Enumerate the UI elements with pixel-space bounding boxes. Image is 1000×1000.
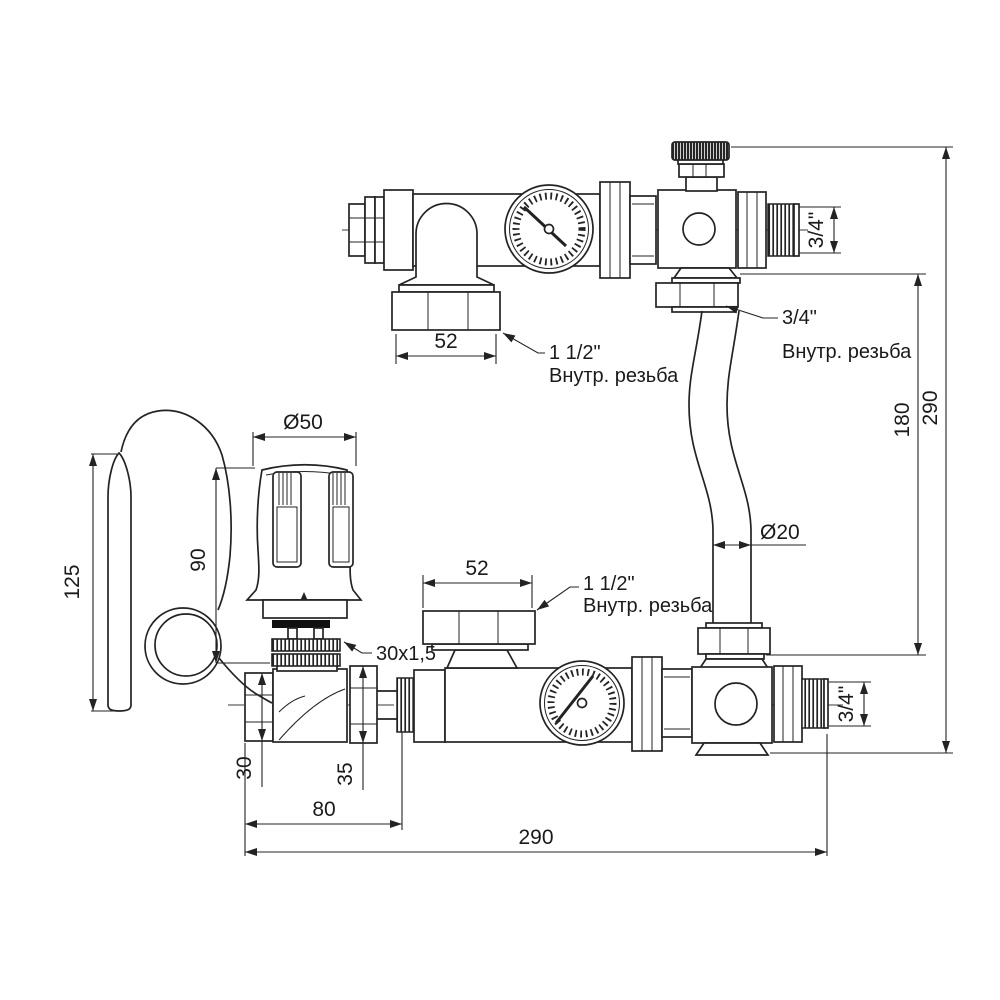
air-vent-cap [672,142,729,191]
dim-label-top-52: 52 [434,330,457,353]
bottom-top-hex [423,611,535,668]
dim-label-bottom-34: 3/4" [835,686,858,723]
note-top-thread-size: 1 1/2" [549,342,601,364]
note-pipe-nut-size: 3/4" [782,307,817,329]
head-grip-right [329,472,353,567]
dim-label-bottom-52: 52 [465,557,488,580]
note-bottom-thread-size: 1 1/2" [583,573,635,595]
note-top-thread-type: Внутр. резьба [549,365,679,387]
drawing-canvas: 52 1 1/2" Внутр. резьба 3/4" 3/4" Внутр.… [0,0,1000,1000]
top-outlet-thread [738,192,799,268]
dim-label-bottom-80: 80 [312,798,335,821]
dim-label-head-dia: Ø50 [283,411,323,434]
top-cross-valve [658,190,736,268]
top-union-nut [600,182,656,278]
note-pipe-nut: 3/4" Внутр. резьба [726,306,912,363]
technical-drawing: 52 1 1/2" Внутр. резьба 3/4" 3/4" Внутр.… [0,0,1000,1000]
dim-bottom-34: 3/4" [829,682,871,726]
adapter-nut-30x15 [272,639,340,666]
pipe-bottom-nut [698,623,770,668]
bottom-left-hex [245,673,273,741]
dim-label-pipe-dia: Ø20 [760,521,800,544]
dim-bottom-52: 52 [423,557,532,608]
note-top-thread: 1 1/2" Внутр. резьба [503,333,679,387]
dim-label-head-height: 90 [187,548,210,571]
note-bottom-thread: 1 1/2" Внутр. резьба [537,573,713,617]
head-grip-left [273,472,301,567]
bottom-pressure-gauge [540,661,624,745]
thermostatic-valve-tee [273,663,347,742]
top-left-spindle [349,190,413,270]
dim-pipe-dia: Ø20 [713,521,806,545]
capillary-tube-upper [121,410,231,610]
dim-head-dia: Ø50 [253,411,356,466]
top-valve-group [349,142,799,330]
dim-label-right-290: 290 [919,390,942,425]
note-adapter-thread-label: 30x1,5 [376,643,436,665]
dim-right-180: 180 [740,274,926,655]
dim-label-right-180: 180 [891,402,914,437]
thermostatic-head [247,465,361,666]
dim-label-top-34: 3/4" [805,212,828,249]
dim-label-bottom-290: 290 [518,826,553,849]
bottom-union-nut [632,657,692,751]
dim-bottom-80: 80 [245,732,402,856]
note-bottom-thread-type: Внутр. резьба [583,595,713,617]
bottom-stub-thread [377,670,445,742]
top-valve-bottom-union [656,268,740,312]
top-pressure-gauge [505,185,593,273]
head-neck [263,600,347,639]
note-adapter-thread: 30x1,5 [344,642,436,665]
capillary-coil [145,608,221,684]
bottom-outlet-thread [774,666,828,742]
dim-top-34: 3/4" [799,207,841,253]
note-pipe-nut-type: Внутр. резьба [782,341,912,363]
sensor-probe [108,453,131,711]
bottom-cross-valve [692,667,772,755]
dim-top-52: 52 [396,330,496,364]
dim-label-union-35: 35 [334,762,357,785]
dim-label-probe-length: 125 [61,564,84,599]
